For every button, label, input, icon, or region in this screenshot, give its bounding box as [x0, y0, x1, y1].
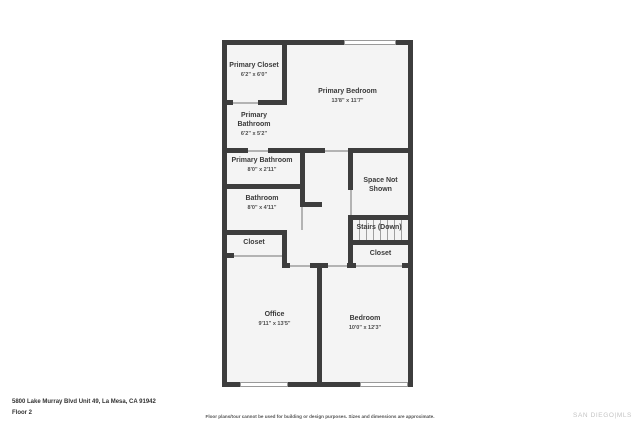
wall-hall-bottom-left — [282, 263, 290, 268]
window-top-bedroom — [344, 40, 396, 45]
room-primary-bathroom-upper: Primary Bathroom 6'2" x 5'2" — [224, 112, 284, 137]
room-bedroom-dims: 10'0" x 12'3" — [322, 325, 408, 332]
room-closet-right-name: Closet — [353, 250, 408, 259]
sandiego-mls-logo: SAN DIEGO|MLS — [573, 412, 632, 419]
room-bathroom-dims: 8'0" x 4'11" — [224, 205, 300, 212]
door-left-closet — [234, 255, 282, 257]
disclaimer-text: Floor plans/tour cannot be used for buil… — [0, 414, 640, 419]
wall-left-closet-stub — [222, 253, 234, 258]
room-primary-bathroom-upper-dims: 6'2" x 5'2" — [224, 131, 284, 138]
room-stairs: Stairs (Down) — [348, 224, 410, 233]
wall-outer-right — [408, 40, 413, 387]
wall-stairs-bottom — [348, 240, 408, 245]
door-office — [290, 265, 310, 267]
wall-hall-bottom-right — [347, 263, 356, 268]
wall-bathroom-bottom — [222, 230, 287, 235]
room-primary-bedroom-name: Primary Bedroom — [287, 88, 408, 97]
door-hall-to-bedroom — [325, 150, 348, 152]
door-space-not-shown — [350, 190, 352, 215]
room-bathroom: Bathroom 8'0" x 4'11" — [224, 195, 300, 212]
room-space-not-shown: Space Not Shown — [355, 177, 406, 195]
room-primary-bathroom-lower-name: Primary Bathroom — [224, 157, 300, 166]
door-primary-bathroom — [248, 150, 268, 152]
wall-main-right — [348, 148, 413, 153]
floorplan-page: Primary Closet 6'2" x 6'0" Primary Bedro… — [0, 0, 640, 427]
wall-hall-stub — [305, 202, 322, 207]
wall-bathroom-divider — [222, 184, 300, 189]
room-office: Office 9'11" x 13'5" — [232, 311, 317, 328]
room-primary-bathroom-lower-dims: 8'0" x 2'11" — [224, 167, 300, 174]
door-bathroom — [301, 207, 303, 230]
window-bottom-office — [240, 382, 288, 387]
door-primary-closet — [233, 102, 258, 104]
door-right-closet — [356, 265, 402, 267]
floorplan-drawing: Primary Closet 6'2" x 6'0" Primary Bedro… — [222, 40, 413, 387]
room-primary-closet-dims: 6'2" x 6'0" — [224, 72, 284, 79]
room-primary-bedroom-dims: 13'8" x 11'7" — [287, 98, 408, 105]
room-closet-left-name: Closet — [224, 239, 284, 248]
room-stairs-name: Stairs (Down) — [348, 224, 410, 233]
room-primary-bathroom-upper-name: Primary Bathroom — [224, 112, 284, 130]
room-bedroom: Bedroom 10'0" x 12'3" — [322, 315, 408, 332]
room-office-name: Office — [232, 311, 317, 320]
room-closet-right: Closet — [353, 250, 408, 259]
room-space-not-shown-name: Space Not Shown — [355, 177, 406, 195]
wall-right-closet-stub — [402, 263, 408, 268]
wall-closet-bottom-right — [258, 100, 287, 105]
wall-right-column-upper — [348, 153, 353, 190]
room-primary-bathroom-lower: Primary Bathroom 8'0" x 2'11" — [224, 157, 300, 174]
room-primary-closet: Primary Closet 6'2" x 6'0" — [224, 62, 284, 79]
wall-main-left — [222, 148, 248, 153]
wall-main-mid — [268, 148, 325, 153]
room-bedroom-name: Bedroom — [322, 315, 408, 324]
window-bottom-bedroom — [360, 382, 408, 387]
door-bedroom — [328, 265, 347, 267]
wall-outer-left — [222, 40, 227, 387]
wall-bathrooms-right — [300, 153, 305, 207]
room-closet-left: Closet — [224, 239, 284, 248]
property-address: 5800 Lake Murray Blvd Unit 49, La Mesa, … — [12, 399, 156, 405]
wall-closet-bottom-left — [222, 100, 233, 105]
room-primary-closet-name: Primary Closet — [224, 62, 284, 71]
room-bathroom-name: Bathroom — [224, 195, 300, 204]
room-office-dims: 9'11" x 13'5" — [232, 321, 317, 328]
room-primary-bedroom: Primary Bedroom 13'8" x 11'7" — [287, 88, 408, 105]
